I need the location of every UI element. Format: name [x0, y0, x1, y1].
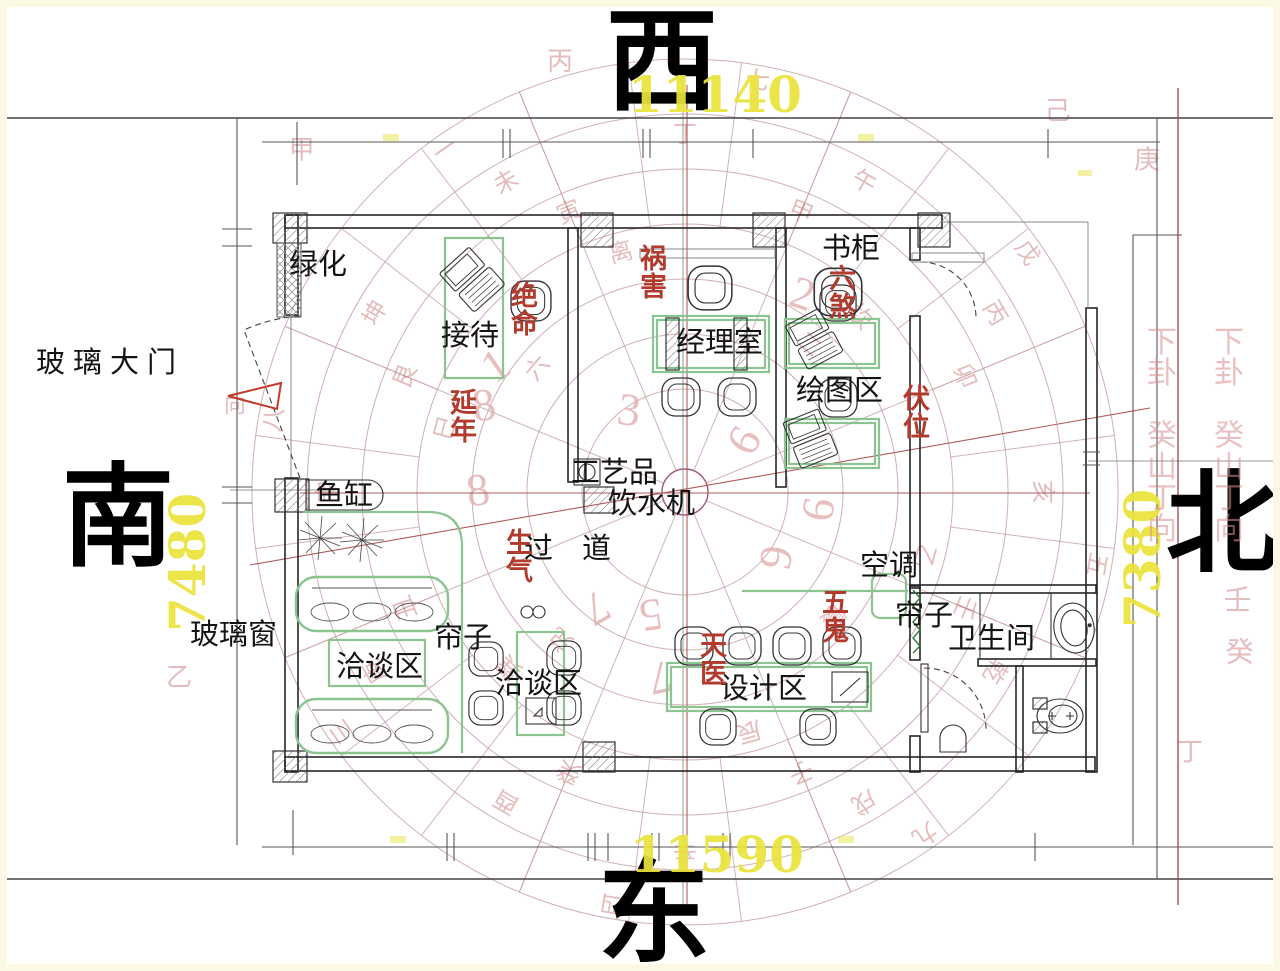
label-drawing-area: 绘图区: [796, 374, 883, 407]
ring-character: 壬: [1224, 585, 1252, 616]
label-bookcase: 书柜: [822, 232, 880, 265]
label-liusha: 六煞: [829, 264, 856, 322]
label-jueming: 绝命: [511, 280, 539, 339]
dim-bottom: 11590: [630, 825, 804, 884]
label-wugui: 五鬼: [822, 588, 849, 646]
manager-chair: [688, 266, 732, 310]
ring-character: 丙: [977, 297, 1012, 331]
side-annotation-2: 下卦 癸山丁向: [1214, 326, 1244, 546]
guest-chair: [662, 378, 700, 416]
label-yannian: 延年: [449, 388, 478, 446]
side-annotation-1: 下卦 癸山丁向: [1147, 326, 1177, 546]
star-number: 6: [791, 494, 845, 526]
ring-character: 午: [847, 165, 881, 200]
design-chair: [773, 627, 811, 665]
ring-character: 乙: [166, 663, 192, 692]
label-huohai: 祸害: [640, 244, 667, 302]
dim-left: 7480: [158, 493, 217, 632]
design-chair: [800, 709, 836, 745]
ring-character: 甲: [785, 196, 817, 229]
label-shengqi: 生气: [505, 528, 533, 586]
label-water-dispenser: 饮水机: [608, 487, 695, 520]
sofa: [296, 699, 448, 753]
ring-character: 甲: [289, 136, 315, 165]
ring-character: 六: [519, 350, 555, 386]
label-design-area: 设计区: [720, 672, 807, 705]
plant: [340, 518, 384, 562]
ring-character: 卯: [947, 360, 981, 393]
label-fuwei: 伏位: [903, 384, 930, 442]
ring-character: 戊: [1009, 235, 1045, 270]
ring-character: 庚: [1134, 146, 1160, 175]
ring-character: 未: [489, 165, 523, 200]
ring-character: 丁: [673, 122, 697, 148]
ring-character: 丙: [547, 47, 573, 76]
label-curtain-bathroom: 帘子: [895, 599, 953, 632]
ring-character: 丁: [1177, 738, 1203, 767]
dim-top: 11140: [628, 65, 802, 124]
ring-character: 向: [224, 393, 246, 418]
label-bathroom: 卫生间: [948, 622, 1035, 655]
ring-character: 一: [429, 133, 464, 168]
floorplan-screenshot: 亥乾戌辛酉庚申坤未丁午丙壬子癸丑艮寅甲卯乙辰巽巳离坎震兑六二五九四三八一七戊向己…: [0, 0, 1280, 971]
label-fish-tank: 鱼缸: [315, 479, 373, 512]
floorplan-drawing: 亥乾戌辛酉庚申坤未丁午丙壬子癸丑艮寅甲卯乙辰巽巳离坎震兑六二五九四三八一七戊向己…: [0, 0, 1280, 971]
label-negotiation-1: 洽谈区: [336, 650, 423, 683]
design-chair: [700, 709, 736, 745]
label-artwork: 工艺品: [571, 456, 658, 489]
ring-character: 辰: [734, 715, 764, 746]
ring-character: 戌: [847, 784, 881, 819]
label-greenery: 绿化: [289, 248, 347, 281]
dimension-labels: 11140 11590 7480 7380: [158, 65, 1172, 884]
star-number: 2: [784, 265, 822, 321]
sink: [1050, 600, 1098, 656]
urinal: [940, 725, 966, 752]
label-glass-door: 玻璃大门: [36, 346, 184, 379]
ring-character: 酉: [490, 784, 524, 819]
ring-character: 艮: [389, 360, 422, 392]
ring-character: 兑: [543, 621, 579, 657]
ring-character: 坤: [358, 296, 393, 330]
ring-character: 丑: [389, 592, 422, 624]
guest-chair: [718, 378, 756, 416]
label-manager-office: 经理室: [676, 326, 763, 359]
ring-character: 癸: [1226, 637, 1254, 669]
label-air-conditioner: 空调: [860, 549, 918, 582]
ring-character: 己: [1045, 96, 1071, 125]
ring-character: 亥: [1029, 480, 1056, 504]
star-number: 8: [463, 463, 493, 517]
plant: [298, 516, 342, 560]
star-number: 3: [614, 383, 644, 437]
star-number: 5: [636, 588, 666, 642]
star-number: 7: [574, 581, 619, 637]
label-negotiation-2: 洽谈区: [495, 667, 582, 700]
toilet: [1033, 698, 1083, 733]
label-tianyi: 天医: [700, 631, 727, 689]
label-reception: 接待: [441, 319, 499, 352]
star-number: 9: [749, 542, 803, 574]
fish-tank-and-counter: [298, 480, 462, 753]
label-corridor: 过 道: [524, 532, 611, 565]
label-curtain-lounge: 帘子: [434, 621, 492, 654]
design-chair: [723, 627, 761, 665]
